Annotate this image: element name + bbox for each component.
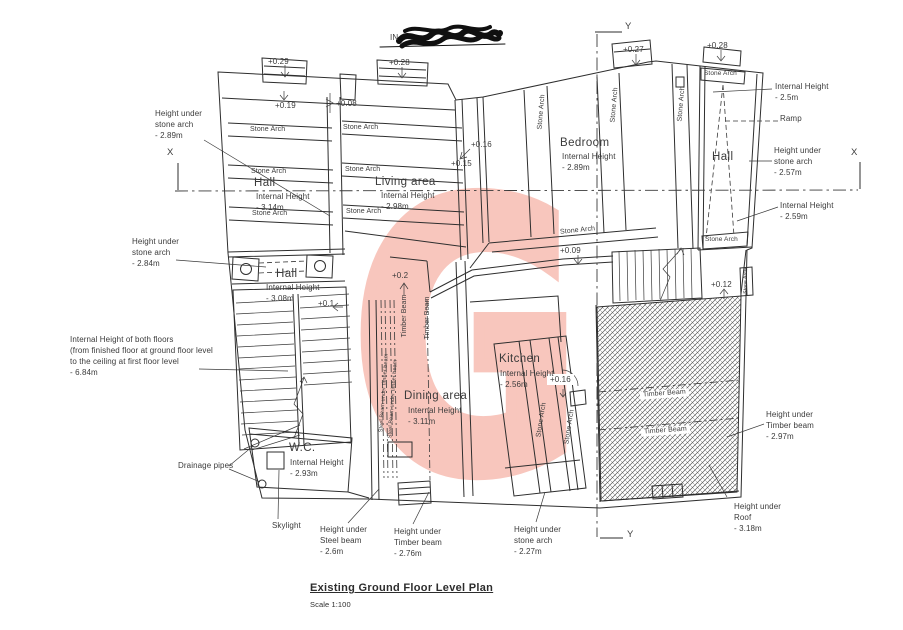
level-mark: +0.12 — [711, 279, 732, 290]
timber-beam-label: Timber Beam — [401, 295, 409, 338]
room-height-kitchen: Internal Height - 2.56m — [500, 368, 554, 390]
plan-title: Existing Ground Floor Level Plan — [310, 583, 493, 594]
level-mark: +0.09 — [560, 245, 581, 256]
redaction-scribble — [380, 27, 505, 47]
room-height-bedroom: Internal Height - 2.89m — [562, 151, 616, 173]
floor-plan-sheet: G — [0, 0, 903, 630]
stone-arch-label: Stone Arch — [345, 166, 380, 174]
room-height-hall-mid: Internal Height - 3.08m — [266, 282, 320, 304]
annotation-skylight: Skylight — [272, 520, 301, 531]
stone-arch-label: Stone Arch — [251, 168, 286, 176]
stairs-east — [612, 248, 753, 303]
room-height-wc: Internal Height - 2.93m — [290, 457, 344, 479]
level-mark: +0.2 — [392, 270, 408, 281]
timber-beam-label: Timber Beam — [424, 297, 432, 340]
level-mark: +0.15 — [451, 158, 472, 169]
room-height-dining: Internal Height - 3.11m — [408, 405, 462, 427]
scale-label: Scale 1:100 — [310, 599, 351, 610]
axis-marker-x-right: X — [851, 147, 857, 158]
level-mark: +0.28 — [707, 40, 728, 51]
room-label-bedroom: Bedroom — [560, 137, 609, 149]
axis-marker-y-bottom: Y — [627, 529, 633, 540]
stone-arch-label: Stone Arch — [250, 126, 285, 134]
annotation-height-under-stone-arch-257: Height under stone arch - 2.57m — [774, 145, 821, 178]
terrace-hatch — [597, 296, 741, 501]
level-mark: +0.27 — [623, 44, 644, 55]
annotation-height-under-stone-arch-289: Height under stone arch - 2.89m — [155, 108, 202, 141]
room-label-wc: W.C. — [289, 442, 316, 454]
skylight-square — [267, 452, 284, 469]
stone-arch-label: Stone Arch — [705, 236, 738, 244]
room-label-hall-mid: Hall — [276, 268, 297, 280]
floor-plan-drawing: G — [0, 0, 903, 630]
room-label-hall-nw: Hall — [254, 177, 275, 189]
stone-arch-label: Stone Arch — [704, 70, 737, 78]
level-mark: +0.16 — [471, 139, 492, 150]
stone-arch-label: Stone Arch — [343, 124, 378, 132]
room-height-living: Internal Height - 2.98m — [381, 190, 435, 212]
annotation-internal-height-both-floors: Internal Height of both floors (from fin… — [70, 334, 213, 378]
stone-arch-label: Stone Arch — [742, 268, 750, 293]
axis-marker-x-left: X — [167, 147, 173, 158]
level-mark: +0.08 — [336, 98, 357, 109]
window-openings — [262, 40, 741, 100]
annotation-drainage-pipes: Drainage pipes — [178, 460, 233, 471]
annotation-height-under-roof: Height under Roof - 3.18m — [734, 501, 781, 534]
room-label-dining: Dining area — [404, 390, 467, 402]
annotation-height-under-timber-beam-297: Height under Timber beam - 2.97m — [766, 409, 814, 442]
stone-arch-label: Stone Arch — [346, 208, 381, 216]
stone-arch-label: Stone Arch — [252, 210, 287, 218]
level-mark: +0.19 — [275, 100, 296, 111]
redacted-text: IN — [390, 32, 398, 43]
room-label-living: Living area — [375, 176, 436, 188]
annotation-height-under-stone-arch-227: Height under stone arch - 2.27m — [514, 524, 561, 557]
annotation-height-under-stone-arch-284: Height under stone arch - 2.84m — [132, 236, 179, 269]
annotation-height-under-timber-beam-276: Height under Timber beam - 2.76m — [394, 526, 442, 559]
room-label-hall-east: Hall — [712, 151, 733, 163]
axis-marker-y-top: Y — [625, 21, 631, 32]
hall-nw-stone-arch-bands — [228, 97, 343, 255]
room-label-kitchen: Kitchen — [499, 353, 540, 365]
annotation-internal-height-25: Internal Height - 2.5m — [775, 81, 829, 103]
stairs-main — [233, 287, 352, 450]
level-mark: +0.1 — [318, 298, 334, 309]
level-mark: +0.29 — [268, 56, 289, 67]
annotation-height-under-steel-beam: Height under Steel beam - 2.6m — [320, 524, 367, 557]
level-mark: +0.28 — [389, 57, 410, 68]
annotation-ramp: Ramp — [780, 113, 802, 124]
annotation-internal-height-259: Internal Height - 2.59m — [780, 200, 834, 222]
